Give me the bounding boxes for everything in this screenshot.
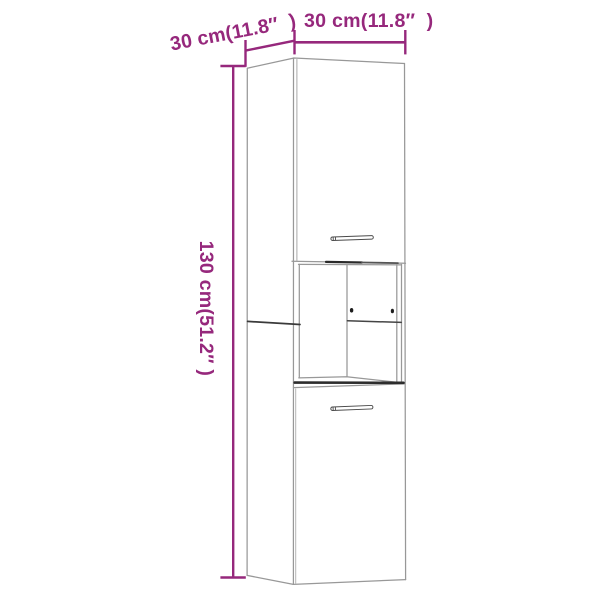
- svg-text:30 cm(11.8″ ): 30 cm(11.8″ ): [304, 10, 433, 32]
- svg-text:130 cm(51.2″ ): 130 cm(51.2″ ): [195, 241, 217, 377]
